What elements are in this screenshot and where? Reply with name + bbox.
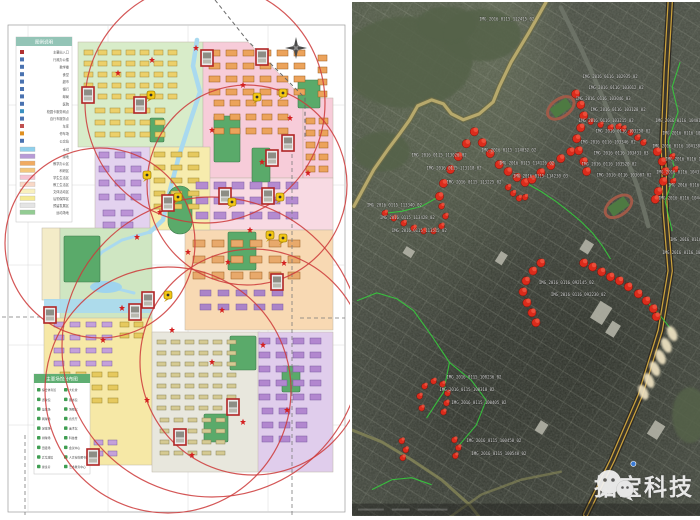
- building: [306, 130, 315, 136]
- campus-map-canvas[interactable]: 图例说明主要出入口行政办公楼教学楼食堂超市银行邮局医院校园卡服务网点自行车服务点…: [0, 0, 350, 520]
- building: [246, 128, 256, 134]
- legend-item-icon: [20, 109, 24, 113]
- legend-item-icon: [37, 465, 41, 469]
- building: [168, 72, 177, 77]
- placemark-highlight: [458, 444, 461, 447]
- building: [185, 340, 194, 344]
- waypoint-label: IMG_2016_0115_113225_02: [446, 179, 502, 184]
- pin-dot: [177, 196, 180, 199]
- placemark-highlight: [646, 296, 651, 301]
- waypoint-label: IMG_2016_0116_102935_02: [583, 74, 639, 79]
- building: [216, 418, 225, 422]
- legend-item-label: 主要出入口: [53, 50, 69, 55]
- building: [216, 429, 225, 433]
- legend-item-icon: [37, 426, 41, 430]
- building: [174, 418, 183, 422]
- photo-marker[interactable]: [262, 188, 274, 204]
- legend-swatch: [20, 182, 35, 187]
- building: [250, 256, 262, 263]
- placemark-highlight: [535, 318, 540, 323]
- waypoint-label: IMG_2016_0115_114230_03: [513, 173, 569, 178]
- placemark-highlight: [657, 187, 662, 192]
- park-area: [354, 132, 410, 172]
- placemark-highlight: [525, 277, 530, 282]
- photo-thumb: [164, 198, 172, 204]
- waypoint-label: IMG_2016_0116_103215_02: [579, 118, 635, 123]
- building: [171, 384, 180, 388]
- pin-dot: [256, 96, 259, 99]
- photo-thumb: [131, 314, 139, 318]
- building: [277, 50, 288, 56]
- legend-swatch: [20, 168, 35, 173]
- placemark-highlight: [586, 167, 591, 172]
- building: [230, 114, 240, 120]
- placemark-highlight: [508, 184, 511, 187]
- building: [171, 406, 180, 410]
- building: [154, 61, 163, 66]
- placemark-highlight: [673, 178, 676, 181]
- photo-marker[interactable]: [282, 135, 294, 151]
- building: [199, 395, 208, 399]
- placemark-highlight: [454, 436, 457, 439]
- legend-item-icon: [20, 80, 24, 84]
- building: [293, 394, 304, 400]
- building: [318, 91, 327, 97]
- placemark-highlight: [610, 273, 615, 278]
- building: [259, 380, 270, 386]
- building: [155, 120, 165, 125]
- waypoint-label: IMG_2016_0116_104310_02: [656, 169, 700, 174]
- building: [319, 142, 328, 148]
- building: [95, 108, 105, 113]
- building: [99, 180, 109, 186]
- building: [102, 322, 112, 327]
- building: [99, 152, 109, 158]
- photo-thumb: [144, 295, 152, 301]
- building: [185, 395, 194, 399]
- building: [84, 50, 93, 55]
- building: [112, 61, 121, 66]
- building: [294, 89, 305, 95]
- building: [202, 429, 211, 433]
- building: [140, 50, 149, 55]
- placemark-highlight: [507, 167, 512, 172]
- legend-item-label: 车库: [63, 124, 70, 129]
- building: [154, 94, 163, 99]
- photo-thumb: [89, 452, 97, 458]
- legend-item-label: 人文社科图书馆: [69, 455, 89, 459]
- blue-placemark[interactable]: [631, 461, 636, 466]
- photo-marker[interactable]: [44, 307, 56, 323]
- building: [213, 373, 222, 377]
- placemark-highlight: [455, 452, 458, 455]
- building: [262, 128, 272, 134]
- legend-swatch: [20, 203, 35, 208]
- legend-item-icon: [64, 417, 68, 421]
- legend-item-icon: [37, 455, 41, 459]
- photo-thumb: [136, 107, 144, 111]
- pin-dot: [146, 174, 149, 177]
- building: [319, 154, 328, 160]
- waypoint-label: IMG_2016_0115_100458_02: [466, 438, 522, 443]
- legend-item-icon: [37, 407, 41, 411]
- building: [171, 373, 180, 377]
- building: [193, 256, 205, 263]
- legend-item-icon: [64, 465, 68, 469]
- building: [188, 440, 197, 444]
- waypoint-label: IMG_2016_0116_104138_03: [652, 144, 700, 149]
- placemark-highlight: [442, 381, 445, 384]
- building: [95, 120, 105, 125]
- placemark-highlight: [628, 283, 633, 288]
- waypoint-label: IMG_2016_0116_103012_02: [589, 85, 645, 90]
- waypoint-label: IMG_2016_0116_103046_03: [576, 96, 632, 101]
- building: [171, 165, 182, 170]
- photo-marker[interactable]: [82, 87, 94, 103]
- legend-header-text: 主要场馆分布图: [46, 376, 78, 383]
- building: [199, 373, 208, 377]
- legend-swatch: [20, 161, 35, 166]
- building: [199, 340, 208, 344]
- pin-dot: [269, 234, 272, 237]
- waypoint-label: IMG_2016_0116_103431_03: [594, 151, 650, 156]
- building: [115, 194, 125, 200]
- photo-thumb: [144, 302, 152, 306]
- photo-thumb: [203, 60, 211, 64]
- legend-item-icon: [37, 436, 41, 440]
- building: [157, 406, 166, 410]
- photo-marker[interactable]: [266, 150, 278, 166]
- building: [140, 132, 150, 137]
- building: [296, 436, 307, 442]
- photo-marker[interactable]: [87, 449, 99, 465]
- building: [293, 352, 304, 358]
- placemark-highlight: [570, 147, 575, 152]
- legend-item-label: 音乐厅: [69, 417, 78, 421]
- building: [213, 384, 222, 388]
- campus-map-panel[interactable]: 图例说明主要出入口行政办公楼教学楼食堂超市银行邮局医院校园卡服务网点自行车服务点…: [0, 0, 350, 520]
- building: [92, 385, 102, 390]
- placemark-highlight: [592, 263, 597, 268]
- building: [108, 372, 118, 377]
- building: [86, 348, 96, 353]
- building: [70, 361, 80, 366]
- legend-item-icon: [20, 124, 24, 128]
- building: [260, 89, 271, 95]
- placemark-highlight: [402, 437, 405, 440]
- placemark-highlight: [583, 112, 588, 117]
- photo-thumb: [264, 198, 272, 202]
- building: [188, 191, 199, 196]
- legend-item-icon: [20, 50, 24, 54]
- building: [125, 120, 135, 125]
- building: [243, 50, 254, 56]
- photo-thumb: [273, 277, 281, 283]
- building: [310, 366, 321, 372]
- building: [213, 340, 222, 344]
- placemark-highlight: [638, 290, 643, 295]
- legend-item-icon: [20, 139, 24, 143]
- photo-marker[interactable]: [271, 274, 283, 290]
- legend-item-label: 足球场: [42, 427, 51, 431]
- building: [70, 322, 80, 327]
- photo-thumb: [221, 191, 229, 197]
- photo-thumb: [258, 59, 266, 63]
- legend-item-icon: [64, 398, 68, 402]
- building: [310, 338, 321, 344]
- photo-marker[interactable]: [134, 97, 146, 113]
- pin-dot: [231, 201, 234, 204]
- placemark-highlight: [445, 213, 448, 216]
- photo-thumb: [284, 145, 292, 149]
- building: [157, 384, 166, 388]
- building: [121, 210, 133, 216]
- photo-marker[interactable]: [129, 304, 141, 320]
- photo-marker[interactable]: [162, 195, 174, 211]
- waypoint-label: IMG_2016_0115_114032_02: [481, 148, 537, 153]
- building: [108, 398, 118, 403]
- building: [108, 440, 117, 445]
- building: [226, 50, 237, 56]
- placemark-highlight: [662, 177, 667, 182]
- legend-swatch: [20, 147, 35, 152]
- photo-thumb: [284, 138, 292, 144]
- building: [200, 290, 211, 296]
- building: [214, 212, 226, 219]
- legend-item-label: 超市: [63, 79, 70, 84]
- building: [140, 72, 149, 77]
- building: [227, 373, 236, 377]
- building: [134, 333, 143, 338]
- legend-item-label: 科技楼: [69, 436, 78, 440]
- legend-item-icon: [37, 446, 41, 450]
- building: [226, 76, 237, 82]
- legend-item-label: 图书馆: [69, 398, 78, 402]
- building: [86, 361, 96, 366]
- building: [140, 120, 150, 125]
- placemark-highlight: [618, 123, 621, 126]
- waypoint-label: IMG_2016_0116_103128_02: [591, 107, 647, 112]
- legend-item-icon: [20, 94, 24, 98]
- photo-thumb: [131, 307, 139, 313]
- waypoint-label: IMG_2016_0116_103346_02: [581, 140, 637, 145]
- placemark-highlight: [540, 168, 545, 173]
- building: [254, 290, 265, 296]
- building: [278, 100, 288, 106]
- building: [112, 83, 121, 88]
- building: [294, 63, 305, 69]
- photo-thumb: [176, 439, 184, 443]
- building: [120, 322, 129, 327]
- building: [276, 394, 287, 400]
- placemark-highlight: [619, 277, 624, 282]
- building: [98, 72, 107, 77]
- building: [108, 385, 118, 390]
- photo-marker[interactable]: [174, 429, 186, 445]
- screenshot-stage: 图例说明主要出入口行政办公楼教学楼食堂超市银行邮局医院校园卡服务网点自行车服务点…: [0, 0, 700, 520]
- placemark-highlight: [525, 194, 528, 197]
- legend-item-icon: [20, 72, 24, 76]
- building: [154, 152, 165, 157]
- building: [306, 166, 315, 172]
- building: [112, 50, 121, 55]
- building: [155, 108, 165, 113]
- photo-thumb: [136, 100, 144, 106]
- photo-thumb: [264, 191, 272, 197]
- photo-thumb: [229, 409, 237, 413]
- building: [171, 351, 180, 355]
- building: [216, 440, 225, 444]
- building: [202, 451, 211, 455]
- legend-swatch-label: 科研区: [59, 168, 69, 173]
- building: [243, 76, 254, 82]
- legend-item-label: 银行: [63, 87, 70, 92]
- waypoint-label: IMG_2016_0115_100236_02: [446, 374, 502, 379]
- building: [231, 256, 243, 263]
- building: [174, 451, 183, 455]
- waypoint-label: IMG_2016_0116_104615_03: [662, 250, 700, 255]
- building: [168, 61, 177, 66]
- building: [86, 322, 96, 327]
- building: [213, 395, 222, 399]
- building: [154, 178, 165, 183]
- building: [199, 406, 208, 410]
- legend-header-text: 图例说明: [35, 39, 53, 46]
- building: [260, 76, 271, 82]
- placemark-highlight: [578, 146, 583, 151]
- photo-thumb: [46, 317, 54, 321]
- legend-swatch-label: 预留发展区: [53, 203, 70, 208]
- pin-dot: [282, 92, 285, 95]
- placemark-highlight: [580, 123, 585, 128]
- legend-item-label: 医院: [63, 101, 70, 106]
- building: [213, 362, 222, 366]
- building: [319, 166, 328, 172]
- placemark-highlight: [580, 101, 585, 106]
- waypoint-label: IMG_2016_0115_113118_02: [427, 166, 483, 171]
- building: [126, 50, 135, 55]
- legend-swatch: [20, 210, 35, 215]
- building: [112, 94, 121, 99]
- building: [259, 352, 270, 358]
- placemark-highlight: [519, 195, 522, 198]
- sports-field: [64, 236, 100, 282]
- building: [185, 362, 194, 366]
- waypoint-label: IMG_2016_0115_113515_02: [392, 228, 448, 233]
- building: [246, 114, 256, 120]
- building: [157, 373, 166, 377]
- building: [278, 114, 288, 120]
- photo-thumb: [203, 53, 211, 59]
- building: [92, 372, 102, 377]
- photo-marker[interactable]: [142, 292, 154, 308]
- satellite-map-canvas[interactable]: IMG_2016_0115_112415_02IMG_2016_0116_102…: [352, 2, 700, 516]
- photo-marker[interactable]: [227, 399, 239, 415]
- photo-marker[interactable]: [256, 49, 268, 65]
- placemark-highlight: [439, 192, 444, 197]
- building: [293, 380, 304, 386]
- legend-swatch: [20, 154, 35, 159]
- photo-thumb: [268, 160, 276, 164]
- placemark-highlight: [473, 127, 478, 132]
- waypoint-label: IMG_2016_0115_113026_02: [412, 153, 468, 158]
- waypoint-label: IMG_2016_0115_100540_02: [471, 451, 527, 456]
- waypoint-label: IMG_2016_0115_100405_02: [451, 400, 507, 405]
- placemark-highlight: [575, 90, 580, 95]
- placemark-highlight: [433, 378, 436, 381]
- building: [126, 72, 135, 77]
- waypoint-label: IMG_2016_0116_103520_02: [582, 162, 638, 167]
- building: [131, 180, 141, 186]
- building: [310, 380, 321, 386]
- building: [231, 240, 243, 247]
- district: [42, 228, 60, 300]
- building: [160, 451, 169, 455]
- building: [227, 384, 236, 388]
- building: [168, 83, 177, 88]
- building: [259, 338, 270, 344]
- building: [296, 422, 307, 428]
- building: [157, 340, 166, 344]
- legend-swatch-label: 水域: [63, 147, 70, 152]
- placemark-highlight: [532, 267, 537, 272]
- satellite-map-panel[interactable]: IMG_2016_0115_112415_02IMG_2016_0116_102…: [352, 2, 700, 516]
- waypoint-label: IMG_2016_0116_104528_02: [670, 237, 700, 242]
- photo-thumb: [268, 153, 276, 159]
- placemark-highlight: [481, 138, 486, 143]
- waypoint-label: IMG_2016_0116_092145_02: [539, 280, 595, 285]
- placemark-highlight: [419, 393, 422, 396]
- building: [154, 50, 163, 55]
- building: [262, 100, 272, 106]
- building: [196, 182, 208, 189]
- building: [262, 436, 273, 442]
- building: [310, 394, 321, 400]
- waypoint-label: IMG_2016_0115_113428_02: [380, 215, 436, 220]
- building: [200, 304, 211, 310]
- building: [272, 304, 283, 310]
- building: [103, 222, 115, 228]
- legend-item-label: 教学楼: [59, 64, 69, 69]
- building: [199, 351, 208, 355]
- placemark-highlight: [540, 259, 545, 264]
- building: [110, 108, 120, 113]
- building: [269, 256, 281, 263]
- building: [108, 451, 117, 456]
- building: [110, 120, 120, 125]
- building: [125, 132, 135, 137]
- building: [157, 351, 166, 355]
- building: [262, 114, 272, 120]
- building: [157, 362, 166, 366]
- building: [98, 50, 107, 55]
- legend-swatch-label: 后勤保障区: [53, 196, 70, 201]
- photo-thumb: [273, 284, 281, 288]
- placemark-highlight: [522, 288, 527, 293]
- photo-marker[interactable]: [201, 50, 213, 66]
- legend-swatch-label: 学生生活区: [53, 175, 70, 180]
- legend-swatch-label: 运动场地: [56, 210, 70, 215]
- legend-item-icon: [20, 87, 24, 91]
- building: [259, 366, 270, 372]
- placemark-highlight: [443, 408, 446, 411]
- building: [171, 340, 180, 344]
- legend-swatch-label: 教学办公区: [53, 161, 70, 166]
- building: [262, 408, 273, 414]
- building: [202, 418, 211, 422]
- placemark-highlight: [421, 405, 424, 408]
- building: [160, 440, 169, 444]
